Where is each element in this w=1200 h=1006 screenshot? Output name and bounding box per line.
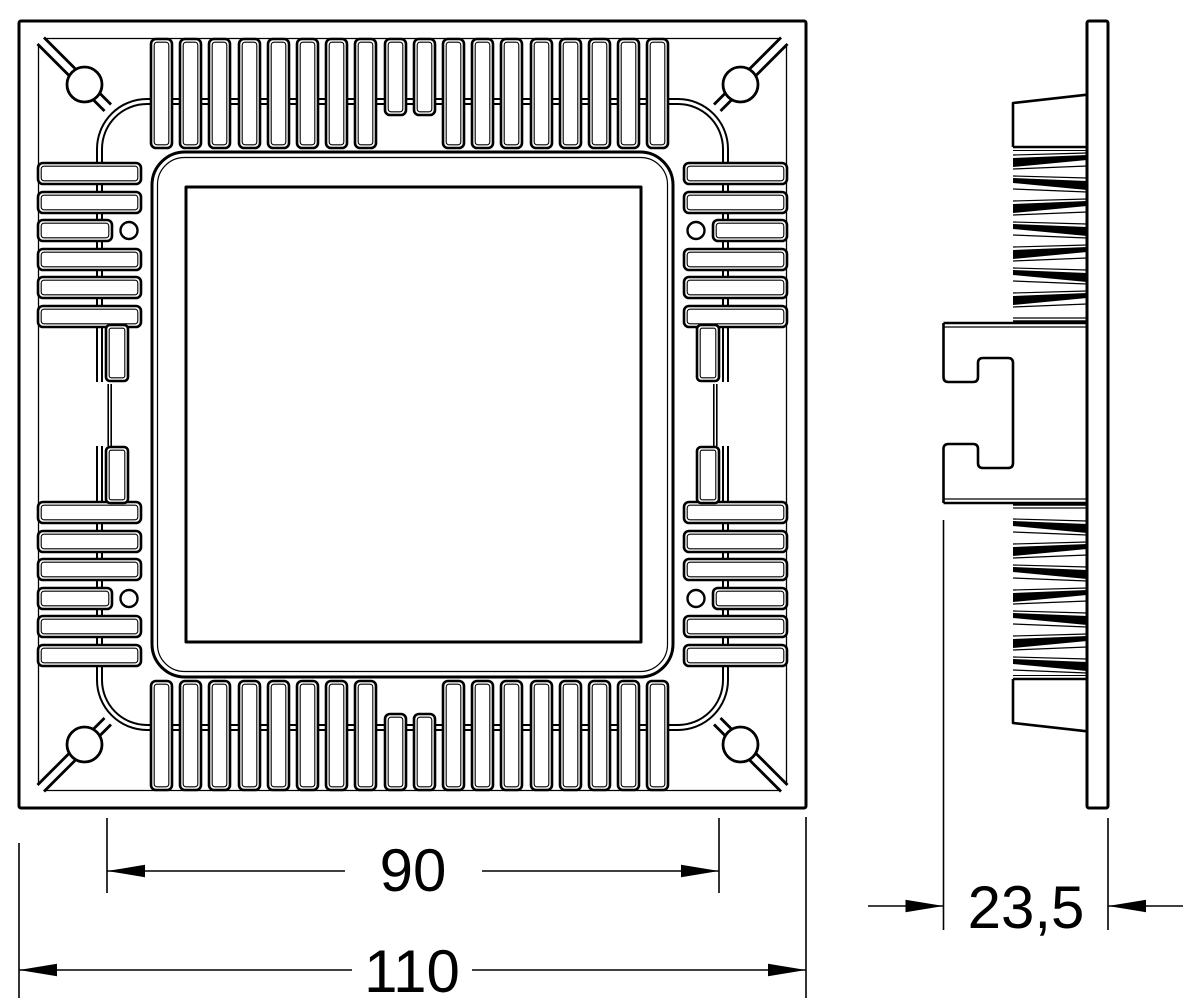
screw-hole-circle xyxy=(121,222,138,239)
screw-hole-circle xyxy=(688,222,705,239)
screw-boss-circle xyxy=(723,67,758,102)
dimension-value-depth: 23,5 xyxy=(968,874,1085,941)
dimension-value-overall: 110 xyxy=(364,938,460,1005)
screw-boss-circle xyxy=(67,727,102,762)
screw-hole-circle xyxy=(121,590,138,607)
dimension-value-cutout: 90 xyxy=(380,837,447,904)
screw-boss-circle xyxy=(723,727,758,762)
screw-hole-circle xyxy=(688,590,705,607)
technical-drawing: 90 110 23,5 xyxy=(0,0,1200,1006)
screw-boss-circle xyxy=(67,67,102,102)
technical-drawing-page: 90 110 23,5 xyxy=(0,0,1200,1006)
